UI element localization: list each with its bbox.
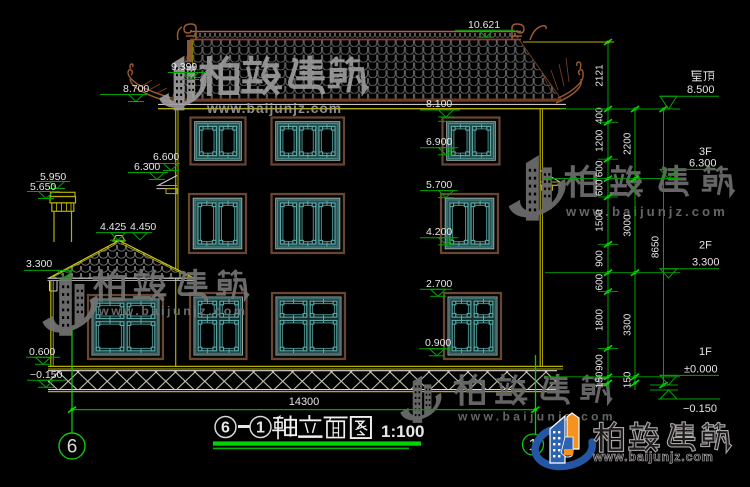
svg-text:6.300: 6.300 bbox=[134, 161, 160, 173]
svg-text:1F: 1F bbox=[699, 346, 712, 358]
svg-text:600: 600 bbox=[595, 160, 606, 177]
svg-text:2.700: 2.700 bbox=[426, 278, 452, 290]
svg-text:www.baijunjz.com: www.baijunjz.com bbox=[98, 304, 248, 318]
svg-text:0.600: 0.600 bbox=[29, 346, 55, 358]
svg-text:1:100: 1:100 bbox=[381, 422, 424, 441]
svg-text:150: 150 bbox=[623, 371, 634, 388]
svg-text:8.100: 8.100 bbox=[426, 98, 452, 110]
svg-text:1: 1 bbox=[256, 420, 265, 437]
svg-text:1200: 1200 bbox=[595, 129, 606, 152]
svg-text:www.baijunjz.com: www.baijunjz.com bbox=[592, 450, 714, 464]
svg-text:www.baijunjz.com: www.baijunjz.com bbox=[206, 101, 342, 116]
svg-text:900: 900 bbox=[595, 250, 606, 267]
svg-text:6: 6 bbox=[67, 437, 78, 458]
svg-text:8.500: 8.500 bbox=[687, 84, 715, 96]
svg-text:3.300: 3.300 bbox=[692, 257, 720, 269]
svg-text:2121: 2121 bbox=[595, 64, 606, 87]
svg-text:14300: 14300 bbox=[289, 396, 320, 408]
svg-text:www.baijunjz.com: www.baijunjz.com bbox=[457, 410, 616, 424]
svg-text:2F: 2F bbox=[699, 240, 712, 252]
svg-text:6.900: 6.900 bbox=[426, 136, 452, 148]
svg-text:3F: 3F bbox=[699, 146, 712, 158]
svg-text:6: 6 bbox=[221, 420, 230, 437]
svg-text:3300: 3300 bbox=[623, 313, 634, 336]
svg-text:4.425: 4.425 bbox=[100, 221, 126, 233]
svg-text:600: 600 bbox=[595, 273, 606, 290]
svg-text:3.300: 3.300 bbox=[26, 258, 52, 270]
svg-text:4.450: 4.450 bbox=[130, 221, 156, 233]
svg-text:8650: 8650 bbox=[651, 235, 662, 258]
svg-text:www.baijunjz.com: www.baijunjz.com bbox=[565, 204, 728, 219]
svg-text:−0.150: −0.150 bbox=[683, 403, 717, 415]
svg-text:6.300: 6.300 bbox=[689, 158, 717, 170]
svg-text:1500: 1500 bbox=[595, 209, 606, 232]
svg-text:150: 150 bbox=[595, 371, 606, 388]
svg-text:8.700: 8.700 bbox=[123, 83, 149, 95]
svg-text:−0.150: −0.150 bbox=[30, 369, 63, 381]
svg-text:600: 600 bbox=[595, 179, 606, 196]
svg-text:4.200: 4.200 bbox=[426, 226, 452, 238]
svg-text:2200: 2200 bbox=[623, 132, 634, 155]
svg-text:±0.000: ±0.000 bbox=[684, 363, 718, 375]
svg-text:10.621: 10.621 bbox=[468, 19, 500, 31]
svg-text:0.900: 0.900 bbox=[425, 337, 451, 349]
svg-text:900: 900 bbox=[595, 354, 606, 371]
svg-text:3000: 3000 bbox=[623, 214, 634, 237]
svg-text:5.700: 5.700 bbox=[426, 179, 452, 191]
svg-text:400: 400 bbox=[595, 107, 606, 124]
svg-text:9.399: 9.399 bbox=[171, 61, 197, 73]
svg-text:1800: 1800 bbox=[595, 308, 606, 331]
